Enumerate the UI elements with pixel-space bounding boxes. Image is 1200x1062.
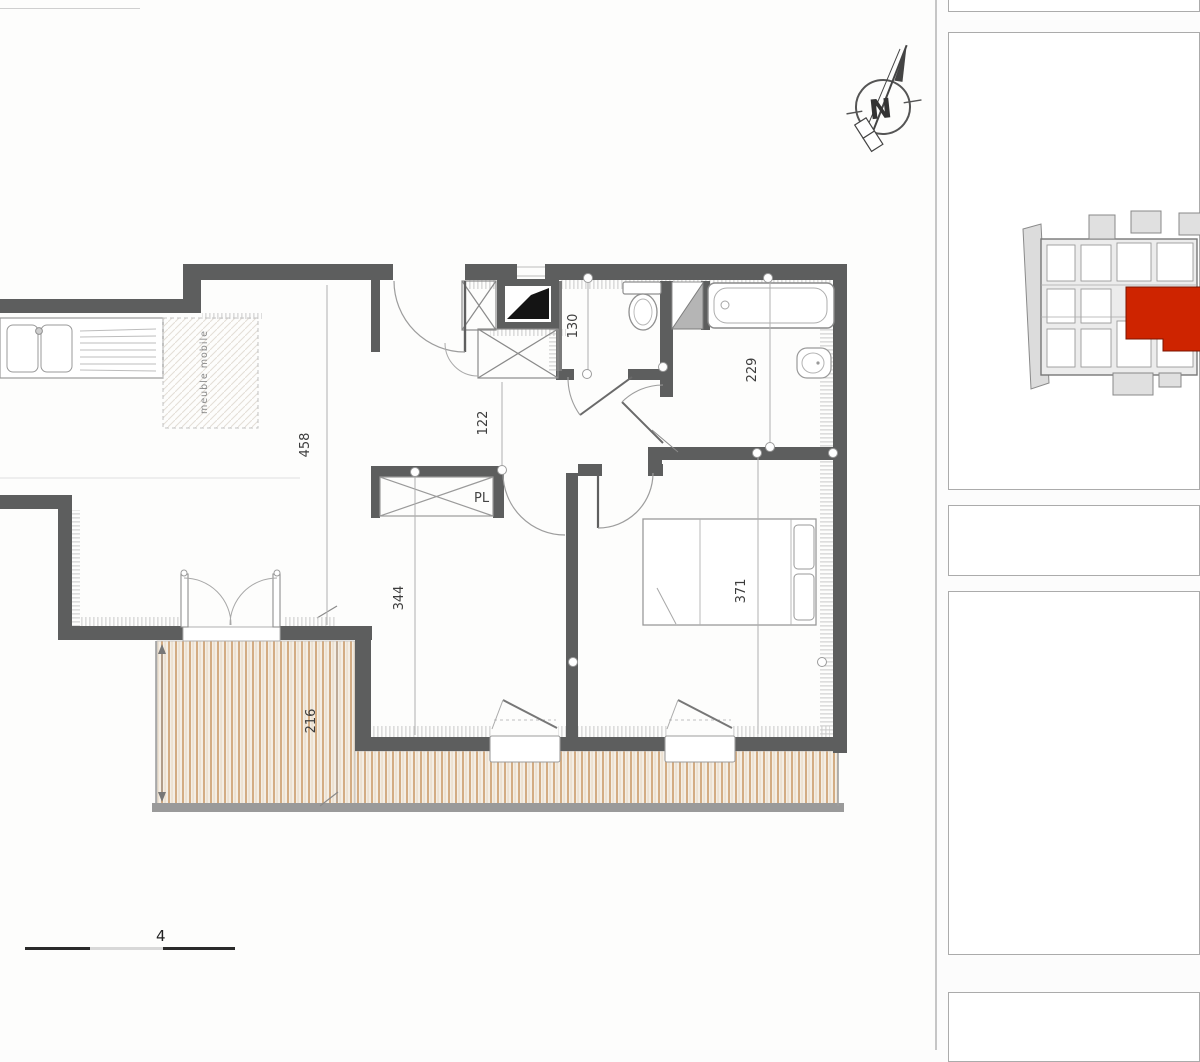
floor-plan: PL meuble mobile (0, 0, 936, 1050)
sidebar-box-3 (948, 505, 1200, 576)
title-block: 31000 TOULOUSE (948, 0, 1200, 12)
dim-terrace: 216 (304, 709, 319, 734)
sheet-right-edge (935, 0, 937, 1050)
keyplan-box (948, 32, 1200, 490)
plan-sheet: PL meuble mobile (0, 0, 936, 1050)
north-compass: N (840, 44, 926, 153)
toilet (623, 282, 661, 330)
dim-kitchen: 458 (298, 433, 313, 458)
city-title: 31000 TOULOUSE (1053, 0, 1200, 7)
terrace-french-door (181, 574, 280, 641)
sheet-top-edge (0, 8, 140, 9)
mobile-furniture-zone (163, 318, 258, 428)
closet-label: PL (474, 491, 490, 506)
bed (643, 519, 816, 625)
mobile-furniture-label: meuble mobile (199, 330, 210, 414)
terrace-edge (152, 803, 844, 812)
bathtub (708, 283, 834, 328)
bedroom-window (665, 700, 735, 762)
dim-bath: 229 (745, 358, 760, 383)
key-plan (1011, 199, 1200, 409)
dim-wc: 130 (566, 314, 581, 339)
wc-door (568, 377, 632, 415)
technical-duct (497, 279, 559, 329)
top-wall-opening (517, 267, 545, 276)
dim-living: 344 (392, 586, 407, 611)
corner-shaft (672, 282, 703, 329)
sidebar-box-5 (948, 992, 1200, 1062)
washbasin (797, 348, 831, 378)
scale-bar: 4 (25, 927, 235, 950)
kitchen-sink (0, 318, 163, 378)
dim-hall: 122 (476, 411, 491, 436)
sidebar-box-4 (948, 591, 1200, 955)
dim-bedroom: 371 (734, 579, 749, 604)
living-window (490, 700, 560, 762)
entry-door (394, 281, 478, 376)
living-door-arc (503, 473, 565, 535)
scale-label: 4 (156, 927, 166, 945)
windows (490, 267, 735, 762)
compass-letter: N (868, 93, 894, 126)
